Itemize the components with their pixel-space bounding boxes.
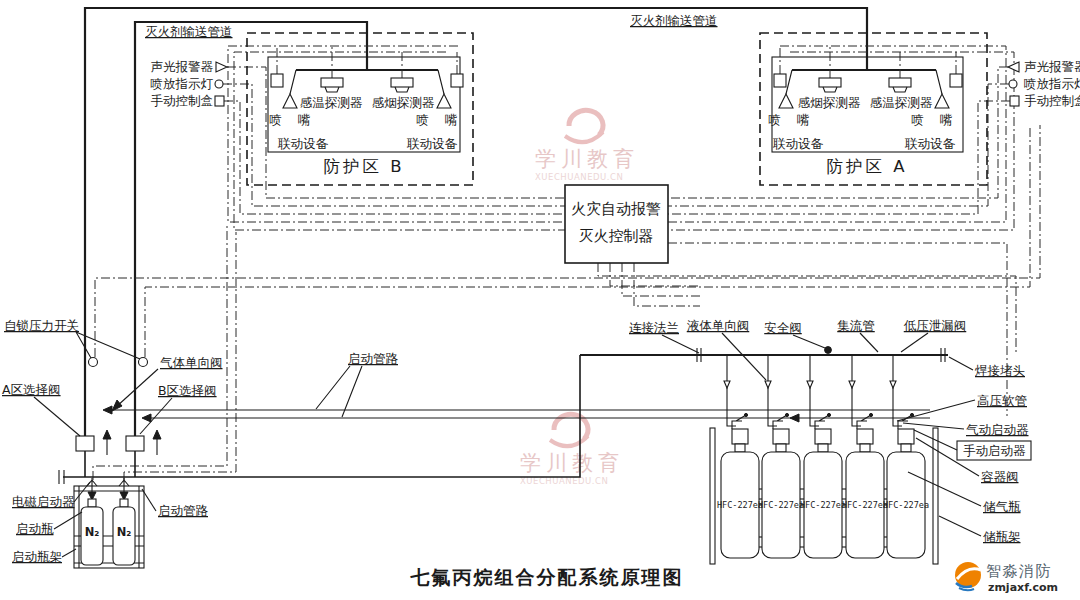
- nozzle-icon: [935, 94, 949, 108]
- devices-right: 声光报警器 喷放指示灯 手动控制盒: [1008, 59, 1080, 108]
- device-label: 声光报警器: [151, 59, 214, 74]
- zone-b: 感温探测器 感烟探测器 喷 嘴 喷 嘴 联动设备 联动设备 防护区 B: [247, 33, 473, 185]
- watermark-top: 学川教育 XUECHUANEDU.CN: [535, 110, 639, 182]
- cylinder: HFC-227ea: [758, 355, 804, 558]
- starter-rack-label: 启动瓶架: [12, 549, 62, 564]
- fire-suppression-schematic: 学川教育 XUECHUANEDU.CN 学川教育 XUECHUANEDU.CN …: [0, 0, 1080, 600]
- heat-detector-icon: [889, 78, 911, 92]
- alarm-box-icon: [271, 74, 283, 87]
- pipe-label-left: 灭火剂输送管道: [145, 24, 233, 39]
- cylinder: HFC-227ea: [800, 355, 846, 558]
- n2-label: N₂: [117, 525, 132, 539]
- manual-control-box-icon: [1010, 96, 1019, 106]
- alarm-box-icon: [774, 74, 786, 87]
- device-label: 手动控制盒: [151, 93, 214, 108]
- starter-pipe-label: 启动管路: [158, 503, 209, 518]
- selector-valve-b-icon: [126, 436, 144, 451]
- solenoid-actuator-icon: [119, 478, 129, 500]
- nozzle-icon: [779, 94, 793, 108]
- cylinder-label: HFC-227ea: [800, 500, 846, 510]
- container-valve-label: 容器阀: [981, 469, 1019, 484]
- manual-control-box-icon: [215, 96, 224, 106]
- container-valve-icon: [732, 429, 748, 444]
- watermark-site: XUECHUANEDU.CN: [535, 172, 623, 182]
- container-valve-icon: [857, 429, 873, 444]
- selector-b-label: B区选择阀: [158, 383, 217, 398]
- sound-light-alarm-icon: [216, 62, 227, 72]
- detector-label: 感烟探测器: [798, 95, 861, 110]
- solenoid-label: 电磁启动器: [12, 494, 75, 509]
- detector-label: 感温探测器: [300, 95, 363, 110]
- nozzle-icon: [437, 94, 451, 108]
- bottle-valve-icon: [120, 499, 128, 507]
- rack-bar: [710, 428, 715, 564]
- nozzle-label: 喷 嘴: [912, 112, 959, 127]
- schematic-page: 学川教育 XUECHUANEDU.CN 学川教育 XUECHUANEDU.CN …: [0, 0, 1080, 600]
- solenoid-actuator-icon: [87, 478, 97, 500]
- container-valve-icon: [898, 429, 914, 444]
- cylinder-label: HFC-227ea: [842, 500, 888, 510]
- storage-rack-label: 储瓶架: [983, 529, 1021, 544]
- pneumatic-starter-label: 气动启动器: [966, 422, 1029, 437]
- cylinder: HFC-227ea: [883, 355, 929, 558]
- collector-label: 集流管: [837, 318, 875, 333]
- cylinder-label: HFC-227ea: [758, 500, 804, 510]
- pipe-label-right: 灭火剂输送管道: [630, 13, 718, 28]
- device-label: 声光报警器: [1024, 59, 1080, 74]
- discharge-lamp-icon: [215, 80, 223, 88]
- pressure-switch-label: 自锁压力开关: [4, 318, 79, 333]
- smoke-detector-icon: [819, 78, 841, 92]
- flange-label: 连接法兰: [629, 320, 679, 335]
- selector-valve-a-icon: [76, 436, 94, 451]
- cylinder-label: HFC-227ea: [717, 500, 763, 510]
- brand-site: zmjaxf.com: [988, 581, 1058, 594]
- starting-pipeline-label: 启动管路: [348, 351, 399, 366]
- diagram-title: 七氟丙烷组合分配系统原理图: [410, 566, 684, 588]
- leak-valve-label: 低压泄漏阀: [904, 318, 967, 333]
- device-label: 喷放指示灯: [1024, 76, 1080, 91]
- linkage-label: 联动设备: [904, 136, 956, 151]
- zone-a-title: 防护区 A: [826, 157, 907, 176]
- smoke-detector-icon: [391, 78, 413, 92]
- detector-label: 感温探测器: [870, 95, 933, 110]
- selector-station: [59, 355, 580, 484]
- manifold-callouts: 连接法兰 液体单向阀 安全阀 集流管 低压泄漏阀: [629, 318, 966, 380]
- safety-valve-label: 安全阀: [764, 320, 802, 335]
- safety-valve-icon: [825, 347, 832, 354]
- devices-left: 声光报警器 喷放指示灯 手动控制盒: [151, 59, 228, 108]
- controller-line2: 灭火控制器: [579, 227, 654, 245]
- nozzle-label: 喷 嘴: [417, 112, 464, 127]
- gas-check-valve-label: 气体单向阀: [160, 355, 223, 370]
- liquid-check-valve-icon: [724, 381, 730, 388]
- hose-label: 高压软管: [977, 393, 1027, 408]
- selector-a-label: A区选择阀: [2, 382, 61, 397]
- storage-bottle-label: 储气瓶: [983, 499, 1021, 514]
- cylinder-label: HFC-227ea: [883, 500, 929, 510]
- liquid-check-valve-icon: [807, 381, 813, 388]
- detector-label: 感烟探测器: [372, 95, 435, 110]
- nozzle-icon: [283, 94, 297, 108]
- nozzle-label: 喷 嘴: [769, 112, 816, 127]
- device-label: 手动控制盒: [1024, 93, 1080, 108]
- linkage-label: 联动设备: [406, 136, 458, 151]
- weld-plug-label: 焊接堵头: [974, 363, 1025, 378]
- device-label: 喷放指示灯: [151, 76, 214, 91]
- controller-line1: 火灾自动报警: [571, 200, 661, 218]
- watermark-bottom: 学川教育 XUECHUANEDU.CN: [520, 414, 624, 486]
- bottle-valve-icon: [88, 499, 96, 507]
- linkage-label: 联动设备: [772, 136, 824, 151]
- alarm-box-icon: [950, 74, 962, 87]
- container-valve-icon: [815, 429, 831, 444]
- center-callout: 启动管路: [316, 351, 399, 417]
- left-callouts: 自锁压力开关 气体单向阀 A区选择阀 B区选择阀 电磁启动器 启动瓶 启动瓶架 …: [2, 318, 223, 564]
- pressure-switch-icon: [89, 358, 98, 367]
- brand-logo: 智淼消防 zmjaxf.com: [955, 562, 1058, 594]
- container-valve-icon: [773, 429, 789, 444]
- linkage-label: 联动设备: [277, 136, 329, 151]
- nozzle-label: 喷 嘴: [270, 112, 317, 127]
- zone-a: 感烟探测器 感温探测器 喷 嘴 喷 嘴 联动设备 联动设备 防护区 A: [760, 33, 987, 185]
- liquid-check-valve-icon: [890, 381, 896, 388]
- liquid-check-valve-icon: [849, 381, 855, 388]
- brand-name: 智淼消防: [986, 562, 1052, 580]
- alarm-box-icon: [451, 74, 463, 87]
- cylinder: HFC-227ea: [842, 355, 888, 558]
- heat-detector-icon: [321, 78, 343, 92]
- n2-label: N₂: [85, 525, 100, 539]
- discharge-lamp-icon: [1009, 80, 1017, 88]
- cylinder: HFC-227ea: [717, 355, 763, 558]
- storage-cylinders: HFC-227ea HFC-227ea HFC-227ea: [717, 355, 929, 558]
- n2-starter-rack: N₂ N₂: [74, 478, 144, 568]
- liquid-check-label: 液体单向阀: [687, 318, 750, 333]
- controller-box: 火灾自动报警 灭火控制器: [565, 185, 668, 263]
- starter-bottle-label: 启动瓶: [16, 521, 54, 536]
- manual-starter-label: 手动启动器: [963, 443, 1026, 458]
- zone-b-title: 防护区 B: [323, 157, 404, 176]
- watermark-text: 学川教育: [535, 147, 639, 171]
- liquid-check-valve-icon: [765, 381, 771, 388]
- watermark-text: 学川教育: [520, 451, 624, 475]
